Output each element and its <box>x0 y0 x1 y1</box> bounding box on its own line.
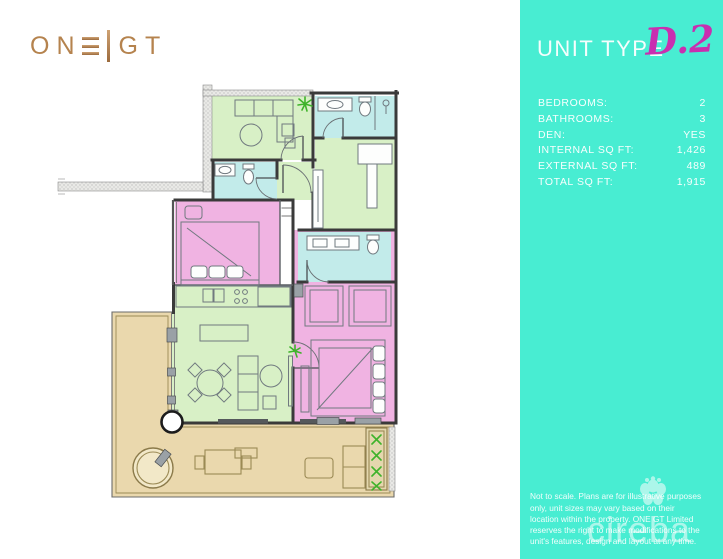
info-panel: UNIT TYPE D.2 BEDROOMS:2 BATHROOMS:3 DEN… <box>520 0 723 559</box>
logo-text-gt: GT <box>119 32 168 61</box>
toilet <box>368 240 379 254</box>
one-gt-logo: ON GT <box>30 30 167 62</box>
pillow <box>209 266 225 278</box>
toilet-tank <box>243 164 254 169</box>
room-kitchen <box>175 285 293 312</box>
column <box>162 412 183 433</box>
logo-letter-e <box>82 37 99 55</box>
spec-row-internal-sqft: INTERNAL SQ FT:1,426 <box>538 143 706 159</box>
water-heater <box>294 284 303 297</box>
spec-row-total-sqft: TOTAL SQ FT:1,915 <box>538 175 706 191</box>
spec-row-bedrooms: BEDROOMS:2 <box>538 96 706 112</box>
pillow <box>373 399 385 413</box>
floor-plan <box>55 80 525 550</box>
vanity-sink <box>215 164 235 176</box>
closet-bedroom-2 <box>280 200 293 285</box>
logo-text-on: ON <box>30 32 82 61</box>
vanity-sink <box>318 98 352 111</box>
spec-list: BEDROOMS:2 BATHROOMS:3 DEN:YES INTERNAL … <box>538 96 706 191</box>
disclaimer-text: Not to scale. Plans are for illustrative… <box>530 491 702 547</box>
pillow <box>227 266 243 278</box>
pillow <box>373 364 385 379</box>
toilet <box>244 170 254 184</box>
pillow <box>373 346 385 361</box>
logo-divider <box>107 30 110 62</box>
unit-code: D.2 <box>644 16 716 64</box>
toilet <box>360 102 371 116</box>
desk <box>358 144 392 164</box>
spec-row-external-sqft: EXTERNAL SQ FT:489 <box>538 159 706 175</box>
pillow <box>373 382 385 397</box>
pillow <box>191 266 207 278</box>
double-vanity <box>307 236 359 250</box>
spec-row-den: DEN:YES <box>538 128 706 144</box>
spec-row-bathrooms: BATHROOMS:3 <box>538 112 706 128</box>
brochure-page: ON GT <box>0 0 723 559</box>
